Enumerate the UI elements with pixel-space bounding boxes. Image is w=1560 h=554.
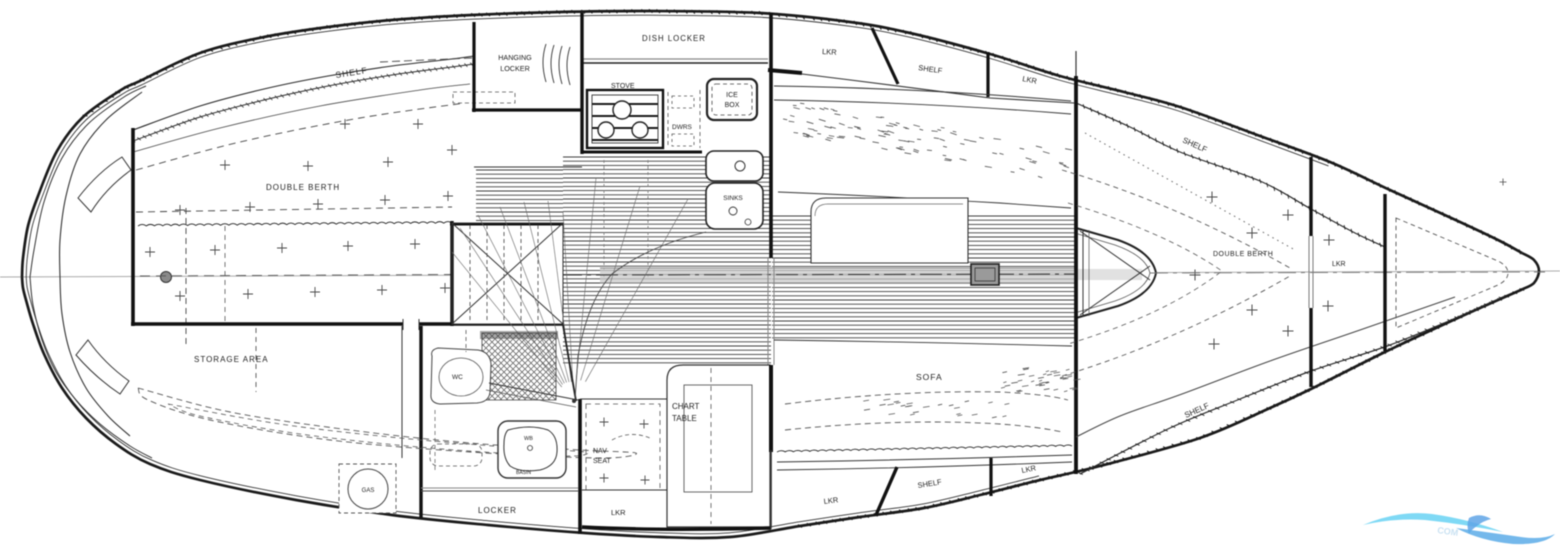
svg-text:GAS: GAS — [362, 488, 375, 494]
svg-text:LOCKER: LOCKER — [500, 64, 530, 73]
svg-text:DISH LOCKER: DISH LOCKER — [642, 34, 706, 43]
svg-text:NAV: NAV — [593, 448, 607, 455]
svg-text:BOX: BOX — [725, 102, 740, 109]
svg-text:WC: WC — [452, 374, 463, 381]
svg-text:LKR: LKR — [611, 508, 626, 517]
svg-text:BASIN: BASIN — [516, 470, 531, 476]
svg-text:WB: WB — [524, 436, 533, 442]
svg-text:STORAGE AREA: STORAGE AREA — [194, 355, 269, 364]
svg-text:DWRS: DWRS — [672, 124, 693, 131]
svg-text:DOUBLE BERTH: DOUBLE BERTH — [1213, 251, 1273, 258]
svg-text:DOUBLE BERTH: DOUBLE BERTH — [266, 183, 340, 192]
svg-text:ICE: ICE — [726, 92, 738, 99]
svg-text:SEAT: SEAT — [593, 458, 611, 465]
svg-text:LOCKER: LOCKER — [478, 506, 517, 515]
svg-text:LKR: LKR — [823, 495, 839, 506]
svg-text:CHART: CHART — [672, 402, 700, 411]
svg-text:SOFA: SOFA — [916, 372, 943, 382]
svg-text:TABLE: TABLE — [672, 414, 697, 423]
svg-text:HANGING: HANGING — [498, 53, 532, 62]
svg-text:LKR: LKR — [1332, 261, 1346, 268]
svg-text:LKR: LKR — [822, 47, 838, 57]
svg-text:SINKS: SINKS — [723, 195, 743, 202]
